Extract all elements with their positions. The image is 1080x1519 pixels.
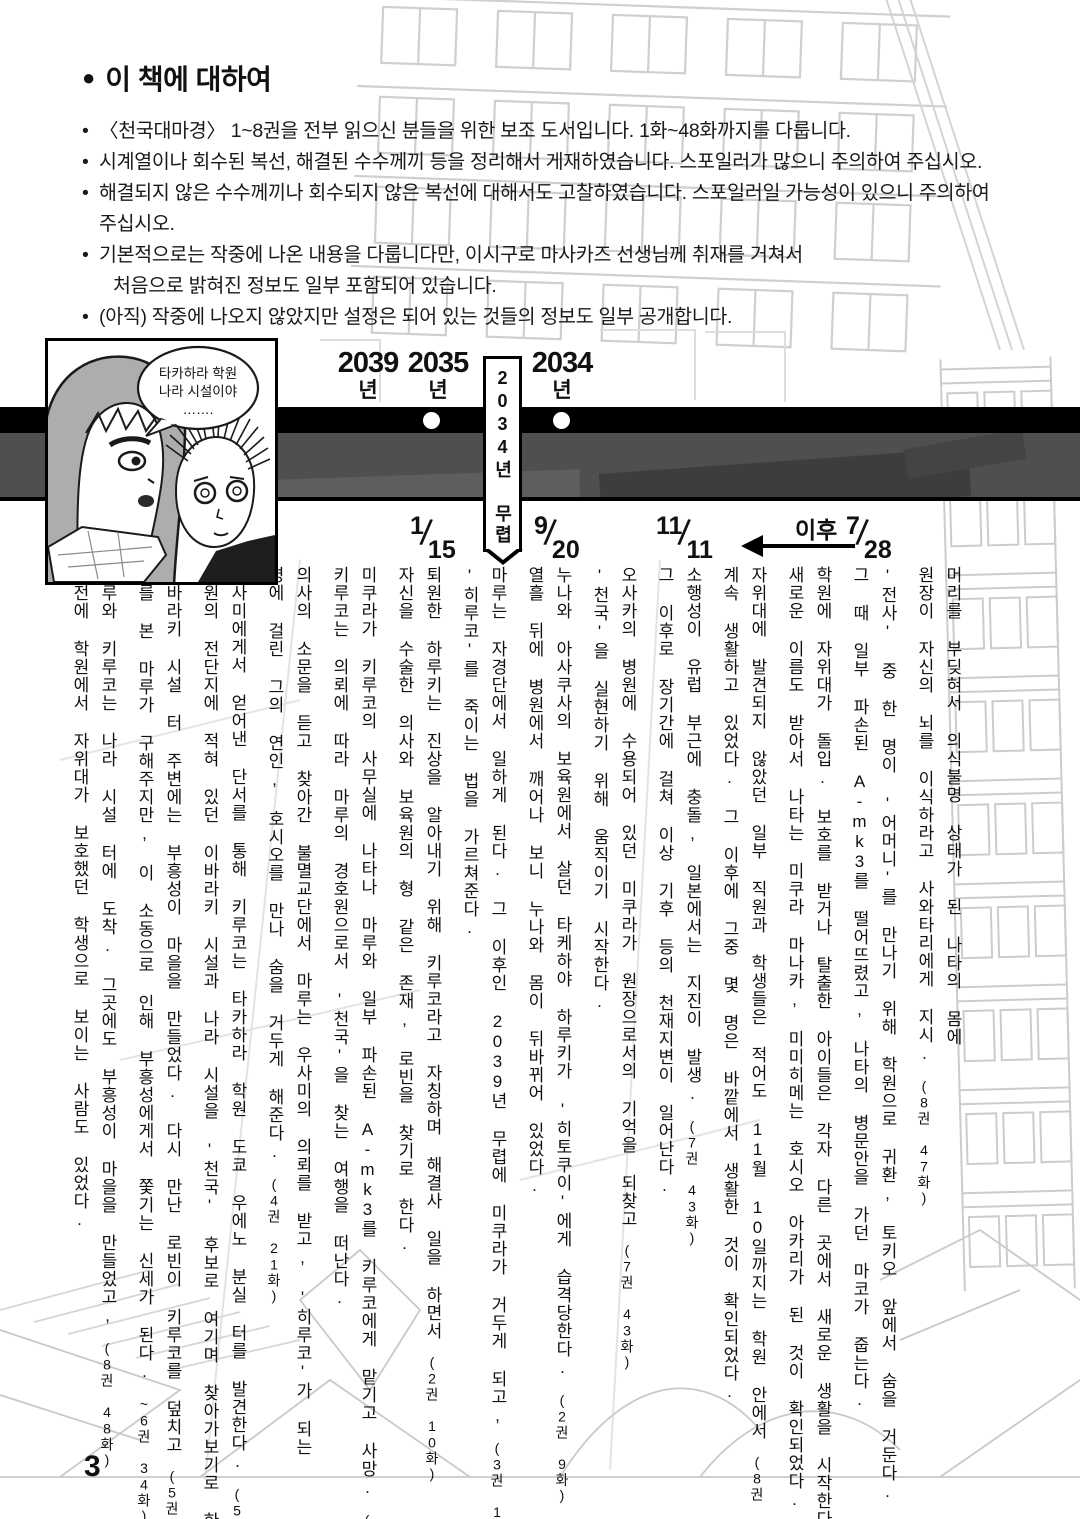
bg-line-art	[954, 881, 1064, 898]
event-line: 퇴원한 하루키는 진상을 알아내기 위해 키루코라고 자칭하며 해결사 일을 하…	[422, 566, 442, 1486]
book-page: ● 이 책에 대하여 •〈천국대마경〉 1~8권을 전부 읽으신 분들을 위한 …	[0, 0, 1080, 1519]
year-label-2039: 2039년	[337, 349, 399, 401]
about-item-text: 시계열이나 회수된 복선, 해결된 수수께끼 등을 정리해서 게재하였습니다. …	[99, 147, 982, 178]
event-line: 원장이 자신의 뇌를 이식하라고 사와타리에게 지시.(8권 47화)	[914, 566, 934, 1486]
event-line: '히루코'를 죽이는 법을 가르쳐준다.	[459, 566, 479, 1486]
bg-line-art	[1043, 1214, 1074, 1265]
event-line: 이를 본 마루가 구해주지만, 이 소동으로 인해 부흥성에게서 쫓기는 신세가…	[134, 566, 154, 1486]
speech-line-3: …….	[183, 402, 214, 417]
bg-line-art	[941, 367, 1051, 384]
event-text: 오사카의 병원에 수용되어 있던 미쿠라가 원장으로서의 기억을 되찾고	[618, 566, 637, 1228]
event-text: '전사' 중 한 명이 '어머니'를 만나기 위해 학원으로 귀환, 토키오 앞…	[878, 566, 897, 1502]
event-text: 자위대에 발견되지 않았던 일부 직원과 학생들은 적어도 11월 10일까지는…	[748, 566, 767, 1440]
event-line: 학원의 전단지에 적혀 있던 이바라키 시설과 나라 시설을 '천국' 후보로 …	[199, 566, 219, 1486]
event-column-7: 누나와 아사쿠사의 보육원에서 살던 타케하야 하루키가 '히토쿠이'에게 습격…	[524, 566, 572, 1486]
bg-line-art	[964, 1010, 995, 1061]
bg-line-art	[992, 701, 1023, 752]
bg-line-art	[998, 906, 1029, 957]
event-column-5: 소행성이 유럽 부근에 충돌, 일본에서는 지진이 발생.(7권 43화)그 이…	[654, 566, 702, 1486]
year-number: 2034	[532, 347, 593, 379]
timeline-dot	[423, 412, 440, 429]
event-column-9: 퇴원한 하루키는 진상을 알아내기 위해 키루코라고 자칭하며 해결사 일을 하…	[394, 566, 442, 1486]
list-bullet-icon: •	[82, 147, 99, 178]
bg-line-art	[1037, 1008, 1068, 1059]
section-bullet-icon: ●	[82, 67, 95, 89]
timeline-events: 머리를 부딪혀서 의식불명 상태가 된 나타의 몸에원장이 자신의 뇌를 이식하…	[62, 566, 962, 1486]
chapter-ref: (2권 9화)	[554, 1392, 570, 1504]
about-item-text: 해결되지 않은 수수께끼나 회수되지 않은 복선에 대해서도 고찰하였습니다. …	[99, 178, 1002, 240]
event-line: 열흘 뒤에 병원에서 깨어나 보니 누나와 몸이 뒤바뀌어 있었다.	[524, 566, 544, 1486]
event-line: 키루코는 의뢰에 따라 마루의 경호원으로서 '천국'을 찾는 여행을 떠난다.	[329, 566, 349, 1486]
event-text: '히루코'를 죽이는 법을 가르쳐준다.	[460, 566, 479, 938]
event-line: 새로운 이름도 받아서 나타는 미쿠라 마나카, 미미히메는 호시오 아카리가 …	[784, 566, 804, 1486]
date-day: 20	[552, 536, 580, 565]
manga-panel-art: 타카하라 학원 나라 시설이야 …….	[48, 341, 275, 582]
event-text: 그 이후로 장기간에 걸쳐 이상 기후 등의 천재지변이 일어난다.	[655, 566, 674, 1196]
event-text: 소행성이 유럽 부근에 충돌, 일본에서는 지진이 발생.	[683, 566, 702, 1104]
event-text: 병에 걸린 그의 연인, 호시오를 만나 숨을 거두게 해준다.	[265, 566, 284, 1162]
date-label-1-15: 1/15	[410, 512, 456, 565]
date-label-9-20: 9/20	[534, 512, 580, 565]
event-line: 자신을 수술한 의사와 보육원의 형 같은 존재, 로빈을 찾기로 한다.	[394, 566, 414, 1486]
event-line: 소행성이 유럽 부근에 충돌, 일본에서는 지진이 발생.(7권 43화)	[682, 566, 702, 1486]
event-line: 마루는 자경단에서 일하게 된다. 그 이후인 2039년 무렵에 미쿠라가 거…	[487, 566, 507, 1486]
event-text: 퇴원한 하루키는 진상을 알아내기 위해 키루코라고 자칭하며 해결사 일을 하…	[423, 566, 442, 1340]
girl-mouth	[138, 495, 154, 507]
year-label-2035: 2035년	[407, 349, 469, 401]
about-item: •〈천국대마경〉 1~8권을 전부 읽으신 분들을 위한 보조 도서입니다. 1…	[82, 116, 1002, 147]
boy-right-eye	[227, 481, 247, 501]
event-text: 예전에 학원에서 자위대가 보호했던 학생으로 보이는 사람도 있었다.	[70, 566, 89, 1230]
bg-line-art	[1003, 1112, 1034, 1163]
event-text: 새로운 이름도 받아서 나타는 미쿠라 마나카, 미미히메는 호시오 아카리가 …	[785, 566, 804, 1510]
about-item: •(아직) 작중에 나오지 않았지만 설정은 되어 있는 것들의 정보도 일부 …	[82, 302, 1002, 333]
about-item-text: 처음으로 밝혀진 정보도 일부 포함되어 있습니다.	[113, 271, 497, 302]
chapter-ref: (5권 26화)	[229, 1486, 245, 1519]
after-arrow-label: 이후	[795, 511, 837, 545]
event-column-10: 미쿠라가 키루코의 사무실에 나타나 마루와 일부 파손된 A-mk3를 키루코…	[329, 566, 377, 1486]
event-column-2: '전사' 중 한 명이 '어머니'를 만나기 위해 학원으로 귀환, 토키오 앞…	[849, 566, 897, 1486]
event-text: 마루와 키루코는 나라 시설 터에 도착. 그곳에도 부흥성이 마을을 만들었고…	[98, 566, 117, 1326]
speech-line-1: 타카하라 학원	[159, 366, 237, 381]
event-column-6: 오사카의 병원에 수용되어 있던 미쿠라가 원장으로서의 기억을 되찾고(7권 …	[589, 566, 637, 1486]
building-silhouette	[249, 469, 580, 501]
era-marker-pointer-inner	[488, 548, 518, 560]
event-text: 키루코는 의뢰에 따라 마루의 경호원으로서 '천국'을 찾는 여행을 떠난다.	[330, 566, 349, 1308]
list-bullet-icon: •	[82, 240, 99, 271]
event-line: 계속 생활하고 있었다. 그 이후에 그중 몇 명은 바깥에서 생활한 것이 확…	[719, 566, 739, 1486]
event-text: 열흘 뒤에 병원에서 깨어나 보니 누나와 몸이 뒤바뀌어 있었다.	[525, 566, 544, 1196]
list-bullet-icon: •	[82, 178, 99, 240]
bg-line-art	[987, 495, 1018, 546]
event-line: '전사' 중 한 명이 '어머니'를 만나기 위해 학원으로 귀환, 토키오 앞…	[877, 566, 897, 1486]
bg-line-art	[961, 907, 992, 958]
bg-line-art	[949, 676, 1059, 693]
date-day: 15	[428, 536, 456, 565]
event-text: 머리를 부딪혀서 의식불명 상태가 된 나타의 몸에	[943, 566, 962, 1046]
chapter-ref: (8권 48화)	[99, 1340, 115, 1468]
year-suffix: 년	[337, 380, 399, 401]
bg-line-art	[950, 496, 981, 547]
about-item-text: 기본적으로는 작중에 나온 내용을 다룹니다만, 이시구로 마사카즈 선생님께 …	[99, 240, 803, 271]
event-text: 그 때 일부 파손된 A-mk3를 떨어뜨렸고, 나타의 병문안을 가던 마코가…	[850, 566, 869, 1410]
bg-line-art	[1035, 905, 1066, 956]
event-line: 예전에 학원에서 자위대가 보호했던 학생으로 보이는 사람도 있었다.	[69, 566, 89, 1486]
chapter-ref: (4권 21화)	[266, 1176, 282, 1304]
left-arrow-icon	[752, 544, 855, 548]
event-text: '천국'을 실현하기 위해 움직이기 시작한다.	[590, 566, 609, 1012]
bg-line-art	[1001, 1009, 1032, 1060]
chapter-ref: (5권 31화	[164, 1468, 180, 1519]
about-section: ● 이 책에 대하여 •〈천국대마경〉 1~8권을 전부 읽으신 분들을 위한 …	[82, 58, 1002, 333]
event-line: 이바라키 시설 터 주변에는 부흥성이 마을을 만들었다. 다시 만난 로빈이 …	[162, 566, 182, 1486]
event-line: 우사미에게서 얻어낸 단서를 통해 키루코는 타카하라 학원 도쿄 우에노 분실…	[227, 566, 247, 1486]
event-line: 그 이후로 장기간에 걸쳐 이상 기후 등의 천재지변이 일어난다.	[654, 566, 674, 1486]
event-text: 계속 생활하고 있었다. 그 이후에 그중 몇 명은 바깥에서 생활한 것이 확…	[720, 566, 739, 1402]
list-bullet-icon	[96, 271, 113, 302]
bg-line-art	[1027, 597, 1058, 648]
event-text: 이를 본 마루가 구해주지만, 이 소동으로 인해 부흥성에게서 쫓기는 신세가…	[135, 566, 154, 1382]
event-line: 학원에 자위대가 돌입. 보호를 받거나 탈출한 아이들은 각자 다른 곳에서 …	[812, 566, 832, 1486]
event-column-3: 학원에 자위대가 돌입. 보호를 받거나 탈출한 아이들은 각자 다른 곳에서 …	[784, 566, 832, 1486]
chapter-ref: (8권 47화)	[916, 1078, 932, 1206]
era-marker-2034: 2034년 무렵	[483, 356, 522, 552]
date-label-11-11: 11/11	[656, 512, 713, 565]
bg-line-art	[951, 779, 1061, 796]
event-line: 미쿠라가 키루코의 사무실에 나타나 마루와 일부 파손된 A-mk3를 키루코…	[357, 566, 377, 1486]
event-text: 누나와 아사쿠사의 보육원에서 살던 타케하야 하루키가 '히토쿠이'에게 습격…	[553, 566, 572, 1378]
event-text: 마루는 자경단에서 일하게 된다. 그 이후인 2039년 무렵에 미쿠라가 거…	[488, 566, 507, 1426]
bg-line-art	[1024, 494, 1055, 545]
girl-pupil	[132, 457, 141, 466]
event-column-14: 마루와 키루코는 나라 시설 터에 도착. 그곳에도 부흥성이 마을을 만들었고…	[69, 566, 117, 1486]
date-day: 11	[686, 536, 712, 565]
year-label-2034: 2034년	[531, 349, 593, 401]
event-line: 머리를 부딪혀서 의식불명 상태가 된 나타의 몸에	[942, 566, 962, 1486]
chapter-ref: (7권 43화)	[684, 1118, 700, 1246]
event-line: '천국'을 실현하기 위해 움직이기 시작한다.	[589, 566, 609, 1486]
page-number: 3	[84, 1450, 101, 1484]
bg-line-art	[960, 1087, 1070, 1104]
event-column-13: 이바라키 시설 터 주변에는 부흥성이 마을을 만들었다. 다시 만난 로빈이 …	[134, 566, 182, 1486]
page-title: 이 책에 대하여	[105, 58, 271, 98]
bg-line-art	[1032, 803, 1063, 854]
event-line: 병에 걸린 그의 연인, 호시오를 만나 숨을 거두게 해준다.(4권 21화)	[264, 566, 284, 1486]
list-bullet-icon: •	[82, 302, 99, 333]
date-label-7-28: 7/28	[846, 512, 892, 565]
chapter-ref: (2권 10화)	[424, 1354, 440, 1482]
event-text: 자신을 수술한 의사와 보육원의 형 같은 존재, 로빈을 찾기로 한다.	[395, 566, 414, 1254]
event-text: 학원의 전단지에 적혀 있던 이바라키 시설과 나라 시설을 '천국' 후보로 …	[200, 566, 219, 1519]
bg-line-art	[946, 573, 1056, 590]
bg-line-art	[990, 598, 1021, 649]
bg-line-art	[966, 1113, 997, 1164]
chapter-ref: (1권 7화)	[359, 1512, 375, 1519]
about-item: •기본적으로는 작중에 나온 내용을 다룹니다만, 이시구로 마사카즈 선생님께…	[82, 240, 1002, 271]
era-marker-label: 2034년 무렵	[490, 359, 516, 549]
boy-left-eye	[195, 483, 215, 503]
event-column-11: 의사의 소문을 듣고 찾아간 불멸교단에서 마루는 우사미의 의뢰를 받고, '…	[264, 566, 312, 1486]
year-suffix: 년	[407, 380, 469, 401]
timeline-dot	[553, 412, 570, 429]
event-text: 의사의 소문을 듣고 찾아간 불멸교단에서 마루는 우사미의 의뢰를 받고, '…	[293, 566, 312, 1456]
event-text: 이바라키 시설 터 주변에는 부흥성이 마을을 만들었다. 다시 만난 로빈이 …	[163, 566, 182, 1454]
event-text: 미쿠라가 키루코의 사무실에 나타나 마루와 일부 파손된 A-mk3를 키루코…	[358, 566, 377, 1498]
section-title-row: ● 이 책에 대하여	[82, 58, 1002, 98]
year-number: 2039	[338, 347, 399, 379]
about-item-text: 〈천국대마경〉 1~8권을 전부 읽으신 분들을 위한 보조 도서입니다. 1화…	[99, 116, 851, 147]
event-line: 자위대에 발견되지 않았던 일부 직원과 학생들은 적어도 11월 10일까지는…	[747, 566, 767, 1486]
bg-line-art	[1040, 1111, 1071, 1162]
speech-line-2: 나라 시설이야	[159, 384, 237, 399]
list-bullet-icon: •	[82, 116, 99, 147]
year-number: 2035	[408, 347, 469, 379]
event-line: 그 때 일부 파손된 A-mk3를 떨어뜨렸고, 나타의 병문안을 가던 마코가…	[849, 566, 869, 1486]
event-column-1: 머리를 부딪혀서 의식불명 상태가 된 나타의 몸에원장이 자신의 뇌를 이식하…	[914, 566, 962, 1486]
about-item-text: (아직) 작중에 나오지 않았지만 설정은 되어 있는 것들의 정보도 일부 공…	[99, 302, 732, 333]
chapter-ref: (7권 43화)	[619, 1242, 635, 1370]
bg-line-art	[418, 8, 420, 64]
about-item: •해결되지 않은 수수께끼나 회수되지 않은 복선에 대해서도 고찰하였습니다.…	[82, 178, 1002, 240]
manga-panel: 타카하라 학원 나라 시설이야 …….	[45, 338, 278, 585]
chapter-ref: (8권 46화)	[749, 1454, 765, 1519]
year-suffix: 년	[531, 380, 593, 401]
event-column-12: 우사미에게서 얻어낸 단서를 통해 키루코는 타카하라 학원 도쿄 우에노 분실…	[199, 566, 247, 1486]
event-column-4: 자위대에 발견되지 않았던 일부 직원과 학생들은 적어도 11월 10일까지는…	[719, 566, 767, 1486]
event-column-8: 마루는 자경단에서 일하게 된다. 그 이후인 2039년 무렵에 미쿠라가 거…	[459, 566, 507, 1486]
chapter-ref: ~6권 34화)	[136, 1396, 152, 1519]
event-line: 마루와 키루코는 나라 시설 터에 도착. 그곳에도 부흥성이 마을을 만들었고…	[97, 566, 117, 1486]
chapter-ref: (3권 14화)	[489, 1440, 505, 1519]
event-line: 의사의 소문을 듣고 찾아간 불멸교단에서 마루는 우사미의 의뢰를 받고, '…	[292, 566, 312, 1486]
event-text: 학원에 자위대가 돌입. 보호를 받거나 탈출한 아이들은 각자 다른 곳에서 …	[813, 566, 832, 1519]
bg-line-art	[962, 1190, 1072, 1207]
bg-line-art	[995, 803, 1026, 854]
event-line: 오사카의 병원에 수용되어 있던 미쿠라가 원장으로서의 기억을 되찾고(7권 …	[617, 566, 637, 1486]
about-item: •시계열이나 회수된 복선, 해결된 수수께끼 등을 정리해서 게재하였습니다.…	[82, 147, 1002, 178]
about-item: 처음으로 밝혀진 정보도 일부 포함되어 있습니다.	[82, 271, 1002, 302]
bg-line-art	[958, 804, 989, 855]
speech-bubble-tail-fill	[161, 421, 175, 423]
date-day: 28	[864, 536, 892, 565]
about-list: •〈천국대마경〉 1~8권을 전부 읽으신 분들을 위한 보조 도서입니다. 1…	[82, 116, 1002, 333]
event-line: 누나와 아사쿠사의 보육원에서 살던 타케하야 하루키가 '히토쿠이'에게 습격…	[552, 566, 572, 1486]
event-text: 우사미에게서 얻어낸 단서를 통해 키루코는 타카하라 학원 도쿄 우에노 분실…	[228, 566, 247, 1472]
event-text: 원장이 자신의 뇌를 이식하라고 사와타리에게 지시.	[915, 566, 934, 1064]
bg-line-art	[957, 984, 1067, 1001]
bg-line-art	[1029, 700, 1060, 751]
